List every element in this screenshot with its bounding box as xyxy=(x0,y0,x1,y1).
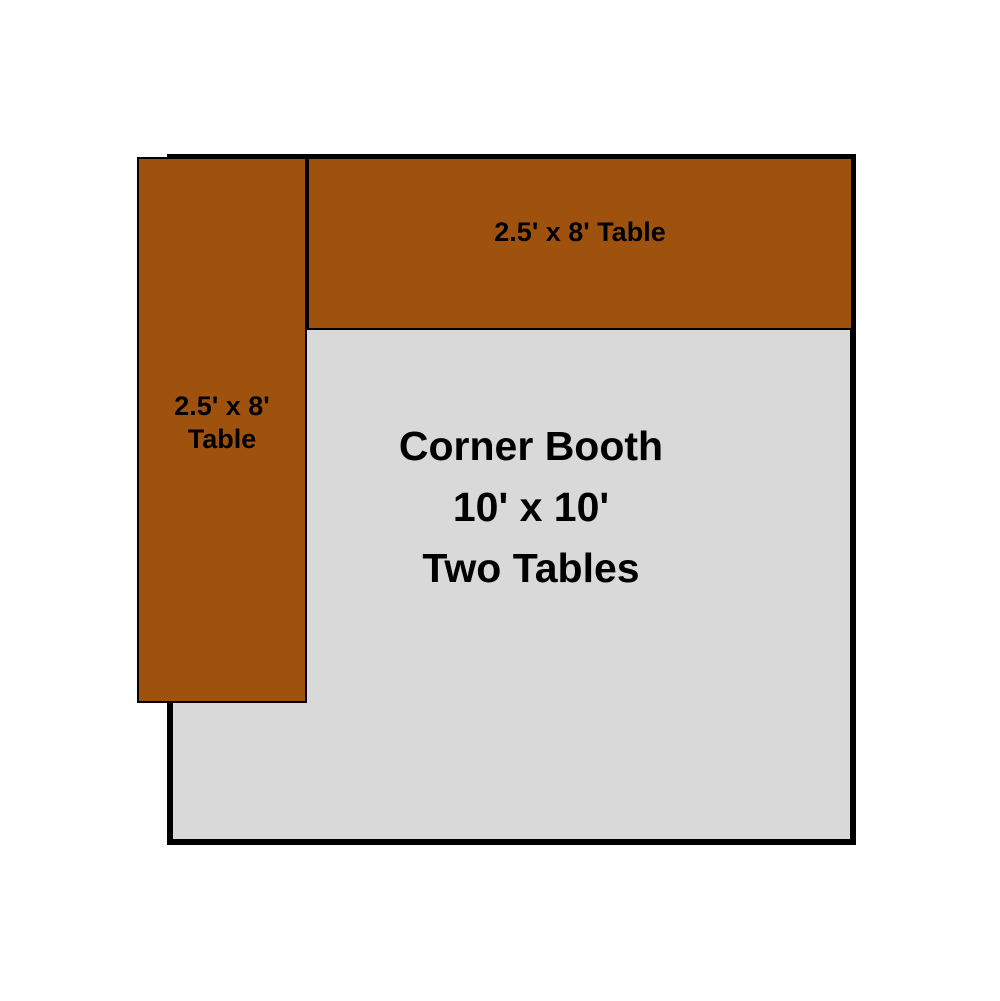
booth-label-line2: 10' x 10' xyxy=(231,477,831,538)
booth-label-line3: Two Tables xyxy=(231,538,831,599)
diagram-canvas: 2.5' x 8' Table 2.5' x 8' Table Corner B… xyxy=(0,0,1000,1001)
booth-label-line1: Corner Booth xyxy=(231,416,831,477)
booth-label: Corner Booth 10' x 10' Two Tables xyxy=(231,416,831,599)
top-table: 2.5' x 8' Table xyxy=(307,157,853,330)
top-table-label: 2.5' x 8' Table xyxy=(494,217,665,248)
